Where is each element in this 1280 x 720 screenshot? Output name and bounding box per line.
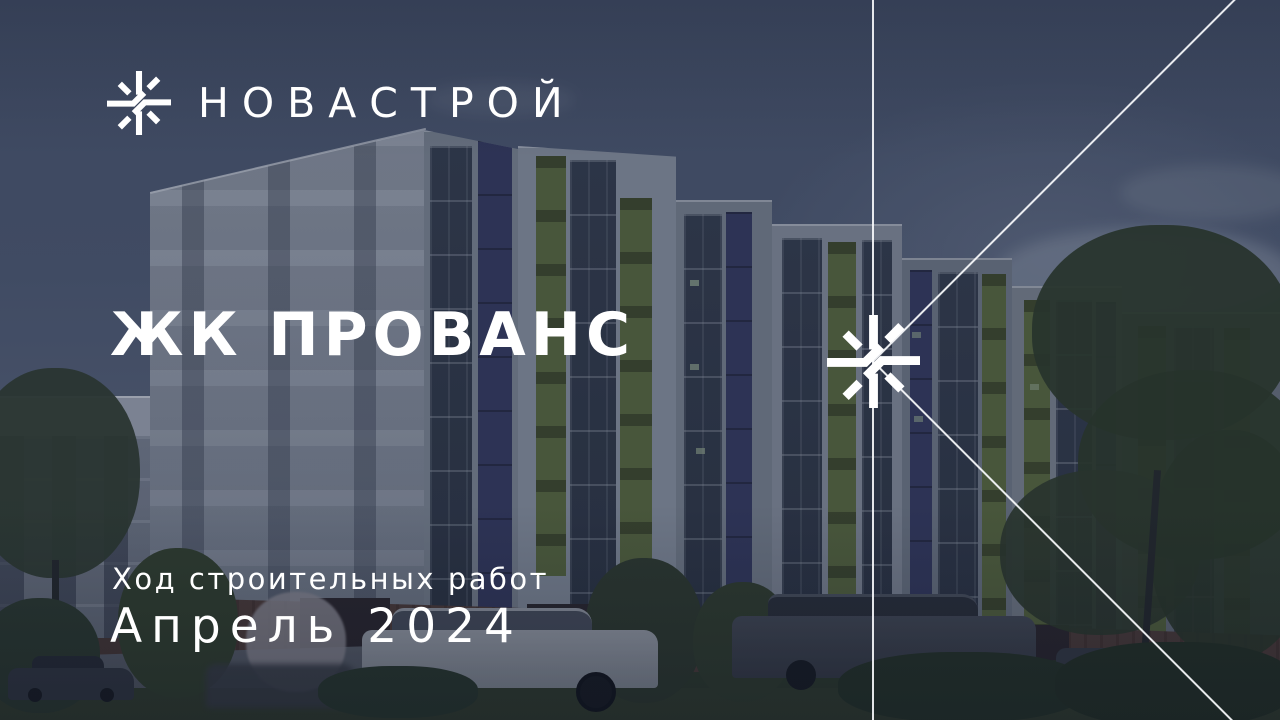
brand-logo (107, 71, 171, 135)
starburst-icon-large (827, 315, 920, 408)
brand-wordmark: НОВАСТРОЙ (198, 83, 576, 124)
starburst-icon (107, 71, 171, 135)
subtitle: Ход строительных работ (112, 565, 549, 594)
video-title-card: ека кофе цветы (0, 0, 1280, 720)
starburst-icon (827, 315, 920, 408)
page-title: ЖК ПРОВАНС (110, 305, 635, 365)
period-label: Апрель 2024 (110, 603, 523, 650)
